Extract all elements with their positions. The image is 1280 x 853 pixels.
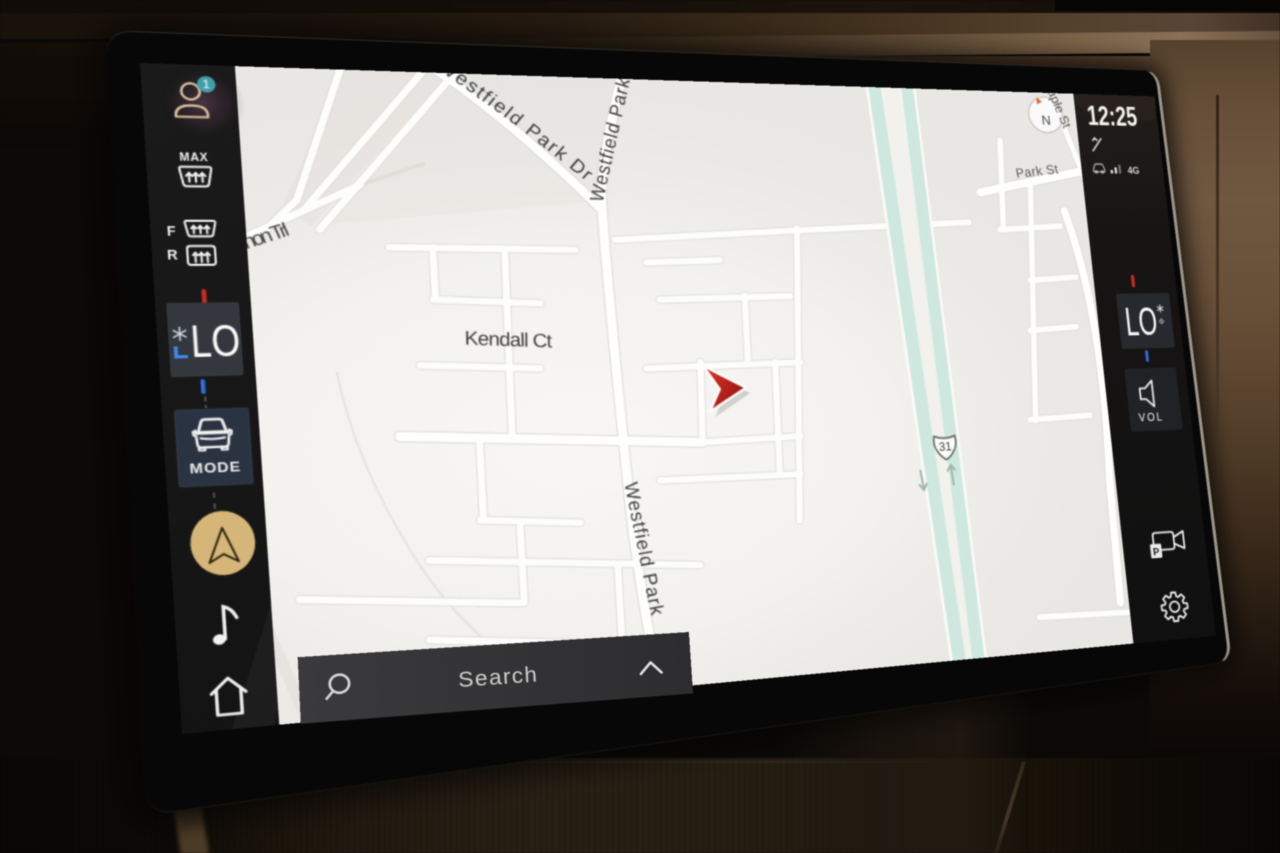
svg-text:LO: LO [189,315,242,368]
svg-text:F: F [166,224,176,239]
svg-text:1: 1 [202,78,211,92]
svg-text:4G: 4G [1127,165,1140,176]
svg-text:P: P [1152,546,1160,558]
svg-text:R: R [167,248,179,263]
svg-text:MODE: MODE [189,459,241,477]
svg-text:MAX: MAX [179,152,209,164]
svg-text:12:25: 12:25 [1086,100,1139,132]
svg-text:LO: LO [1123,300,1160,344]
svg-text:VOL: VOL [1138,410,1163,423]
